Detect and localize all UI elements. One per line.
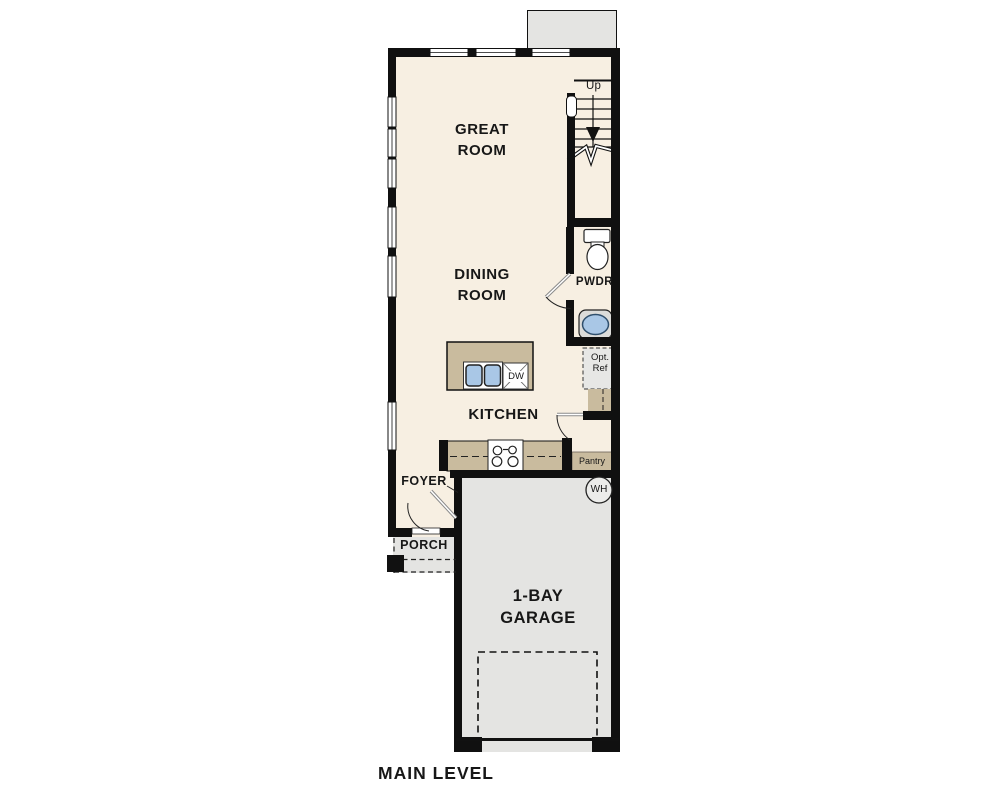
door-leaf-inner xyxy=(546,274,570,297)
floor-plan: GREAT ROOM DINING ROOM KITCHEN FOYER POR… xyxy=(0,0,1000,800)
burner-icon xyxy=(509,446,517,454)
wall xyxy=(439,440,448,471)
stair-wall-cased-opening xyxy=(567,96,577,117)
kitchen-label: KITCHEN xyxy=(453,406,554,423)
window xyxy=(532,49,570,57)
burner-icon xyxy=(493,446,502,455)
wall xyxy=(567,218,619,227)
great-room-label: GREAT ROOM xyxy=(442,119,522,161)
burner-icon xyxy=(508,457,518,467)
wall xyxy=(454,470,462,752)
garage-label: 1-BAY GARAGE xyxy=(498,585,578,629)
window xyxy=(388,129,396,157)
sink-basin-left-icon xyxy=(466,365,482,386)
burner-icon xyxy=(492,457,502,467)
window xyxy=(388,402,396,450)
water-heater-label: WH xyxy=(588,484,610,495)
sink-basin-icon xyxy=(583,315,609,335)
garage-details xyxy=(456,652,619,740)
porch-label: PORCH xyxy=(396,538,452,552)
door-swing-arc xyxy=(557,415,570,440)
window xyxy=(388,256,396,297)
stair-up-arrow-icon xyxy=(586,127,600,142)
wall xyxy=(566,337,619,346)
wall xyxy=(562,438,572,471)
door-swing-arc xyxy=(408,503,429,531)
door-leaf-inner xyxy=(431,491,456,518)
porch-post xyxy=(387,555,404,572)
wall xyxy=(388,528,412,537)
door-threshold xyxy=(412,528,440,534)
window xyxy=(388,207,396,248)
range-icon xyxy=(488,440,523,471)
toilet-tank-icon xyxy=(584,230,610,243)
wall xyxy=(566,227,574,274)
window xyxy=(430,49,468,57)
dining-room-label: DINING ROOM xyxy=(442,264,522,306)
window xyxy=(476,49,516,57)
sink-basin-right-icon xyxy=(485,365,501,386)
garage-door-clearance xyxy=(478,652,597,740)
door-hinge xyxy=(583,411,590,418)
powder-room-label: PWDR xyxy=(571,276,618,288)
stairs-up-label: Up xyxy=(581,80,606,92)
plan-title: MAIN LEVEL xyxy=(378,763,494,784)
window xyxy=(388,97,396,127)
wall xyxy=(450,470,620,478)
optional-refrigerator-label: Opt. Ref xyxy=(584,352,616,374)
foyer-label: FOYER xyxy=(399,474,449,488)
toilet-bowl-icon xyxy=(587,245,608,270)
doors xyxy=(408,274,590,534)
window xyxy=(388,159,396,188)
wall xyxy=(611,48,620,752)
dishwasher-label: DW xyxy=(505,371,527,382)
pantry-label: Pantry xyxy=(572,456,612,466)
